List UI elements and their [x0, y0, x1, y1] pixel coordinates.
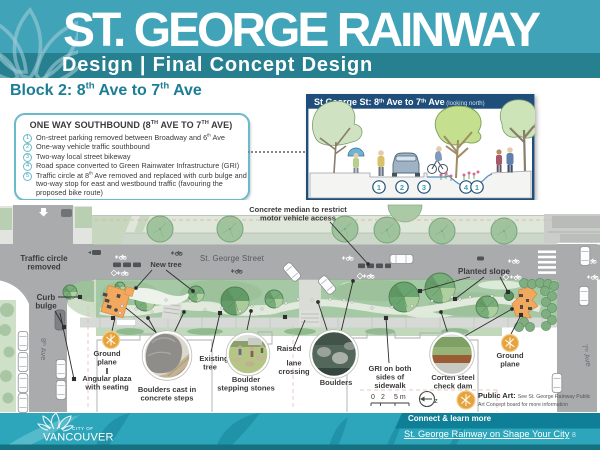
- svg-text:0: 0: [371, 394, 375, 401]
- svg-text:8th Ave: 8th Ave: [39, 338, 48, 360]
- svg-text:motor vehicle access: motor vehicle access: [260, 214, 336, 223]
- svg-text:removed: removed: [27, 263, 60, 272]
- svg-text:sidewalk: sidewalk: [374, 381, 406, 390]
- svg-text:Art Concept board for more inf: Art Concept board for more information: [478, 402, 568, 408]
- svg-text:5 m: 5 m: [394, 394, 406, 401]
- svg-text:3: 3: [422, 183, 426, 192]
- svg-text:check dam: check dam: [434, 382, 473, 391]
- svg-text:1: 1: [377, 183, 381, 192]
- svg-text:crossing: crossing: [278, 367, 310, 376]
- svg-text:tree: tree: [203, 363, 217, 372]
- svg-text:Raised: Raised: [277, 344, 302, 353]
- svg-text:1: 1: [475, 183, 479, 192]
- svg-text:concrete steps: concrete steps: [141, 394, 194, 403]
- svg-text:Boulders: Boulders: [320, 378, 353, 387]
- svg-text:bulge: bulge: [35, 302, 57, 311]
- svg-text:New tree: New tree: [150, 260, 181, 269]
- svg-text:z: z: [434, 396, 438, 405]
- svg-text:with seating: with seating: [84, 383, 129, 392]
- svg-text:Planted slope: Planted slope: [458, 267, 511, 276]
- svg-text:2: 2: [381, 394, 385, 401]
- svg-text:plane: plane: [97, 358, 117, 367]
- svg-text:stepping stones: stepping stones: [217, 384, 275, 393]
- svg-text:St. George Rainway on Shape Yo: St. George Rainway on Shape Your City: [404, 429, 570, 439]
- svg-text:St. George Street: St. George Street: [200, 254, 265, 263]
- svg-text:Connect & learn more: Connect & learn more: [408, 414, 492, 423]
- svg-text:8: 8: [572, 432, 576, 439]
- svg-text:VANCOUVER: VANCOUVER: [43, 432, 114, 444]
- svg-text:plane: plane: [500, 360, 520, 369]
- svg-text:2: 2: [400, 183, 404, 192]
